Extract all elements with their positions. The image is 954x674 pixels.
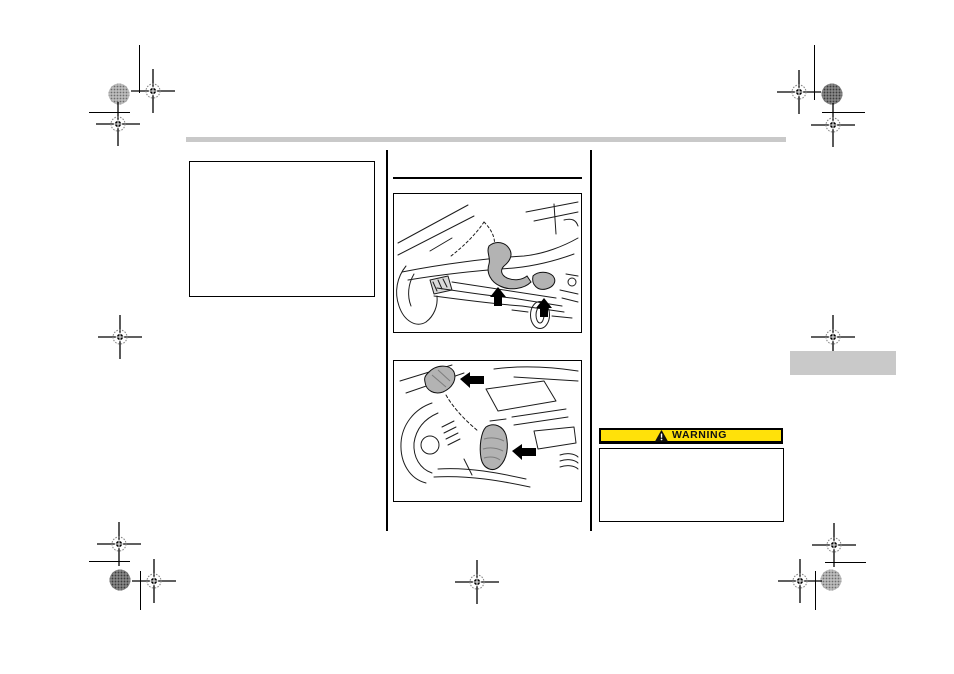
front-underbody-figure [393,193,582,333]
rear-underbody-illustration [394,361,580,500]
registration-crosshair-icon [811,103,855,147]
front-underbody-illustration [394,194,580,331]
column-divider-left [386,150,388,531]
warning-triangle-icon [655,430,668,442]
front-tie-down-hook-shapes [488,243,555,290]
up-arrow-icon [490,287,552,317]
section-heading-rule [393,177,582,179]
warning-banner-label: WARNING [672,430,727,441]
warning-text-frame [599,448,784,522]
column-divider-right [590,150,592,531]
halftone-dot-icon [819,568,843,592]
chapter-index-tab [790,351,896,375]
registration-crosshair-icon [132,559,176,603]
page-header-rule [186,137,786,142]
warning-banner: WARNING [599,428,783,444]
registration-crosshair-icon [98,315,142,359]
manual-page-proof: WARNING [0,0,954,674]
trim-line [825,562,866,563]
rear-underbody-figure [393,360,582,502]
left-column-text-frame [189,161,375,297]
registration-crosshair-icon [96,102,140,146]
registration-crosshair-icon [778,559,822,603]
halftone-dot-icon [108,568,132,592]
trim-line [89,561,130,562]
trim-line [814,45,815,100]
registration-crosshair-icon [455,560,499,604]
